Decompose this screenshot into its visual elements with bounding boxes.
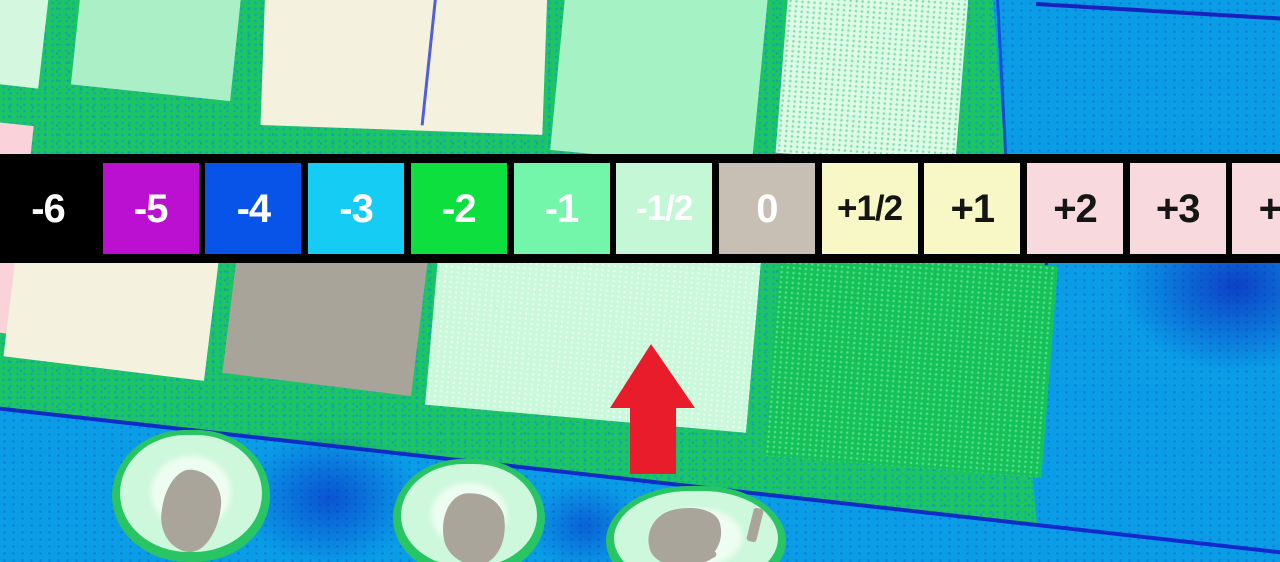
exposure-stop: -5 (103, 163, 199, 254)
fingertip (112, 430, 270, 562)
color-patch-mint (71, 0, 241, 101)
color-patch-cream-top (261, 0, 548, 135)
chart-background-top (0, 0, 1280, 154)
exposure-stop: +3 (1130, 163, 1226, 254)
exposure-stop-label: +4 (1259, 189, 1280, 229)
color-patch-mint-topleft (0, 0, 49, 89)
exposure-stop: -3 (308, 163, 404, 254)
exposure-stop-label: +1/2 (837, 191, 902, 226)
exposure-stop-label: -2 (442, 189, 476, 229)
exposure-stop-label: +3 (1156, 189, 1200, 229)
exposure-stop-label: +1 (950, 189, 994, 229)
exposure-stop: 0 (719, 163, 815, 254)
chart-background-bottom (0, 263, 1280, 562)
up-arrow-shape (610, 344, 695, 474)
exposure-stop-label: +2 (1053, 189, 1097, 229)
color-patch-green-speckled (764, 244, 1058, 477)
exposure-stop: -2 (411, 163, 507, 254)
exposure-stop: -6 (0, 163, 96, 254)
exposure-stop: -1 (514, 163, 610, 254)
exposure-stop-label: -1 (545, 189, 579, 229)
fingertip (393, 459, 545, 562)
color-patch-mint-target (425, 233, 761, 432)
exposure-stop: +2 (1027, 163, 1123, 254)
color-patch-mint-wide (550, 0, 768, 169)
exposure-stop-label: -1/2 (636, 191, 692, 226)
exposure-stop: -4 (205, 163, 301, 254)
up-arrow-icon (603, 341, 703, 481)
exposure-stop: -1/2 (616, 163, 712, 254)
shadow-cloud-right (1110, 259, 1280, 379)
exposure-stop-label: -6 (31, 189, 65, 229)
exposure-stop-label: -4 (237, 189, 271, 229)
exposure-stop: +1 (924, 163, 1020, 254)
exposure-stop: +1/2 (822, 163, 918, 254)
exposure-stop-label: -3 (339, 189, 373, 229)
exposure-scale-bar: -6 -5 -4 -3 -2 -1 -1/2 0 +1/2 +1 +2 +3 +… (0, 154, 1280, 263)
exposure-stop-label: -5 (134, 189, 168, 229)
exposure-diagram: -6 -5 -4 -3 -2 -1 -1/2 0 +1/2 +1 +2 +3 +… (0, 0, 1280, 562)
exposure-stop-label: 0 (756, 189, 777, 229)
exposure-stop: +4 (1232, 163, 1280, 254)
color-patch-speckled-light (776, 0, 969, 167)
